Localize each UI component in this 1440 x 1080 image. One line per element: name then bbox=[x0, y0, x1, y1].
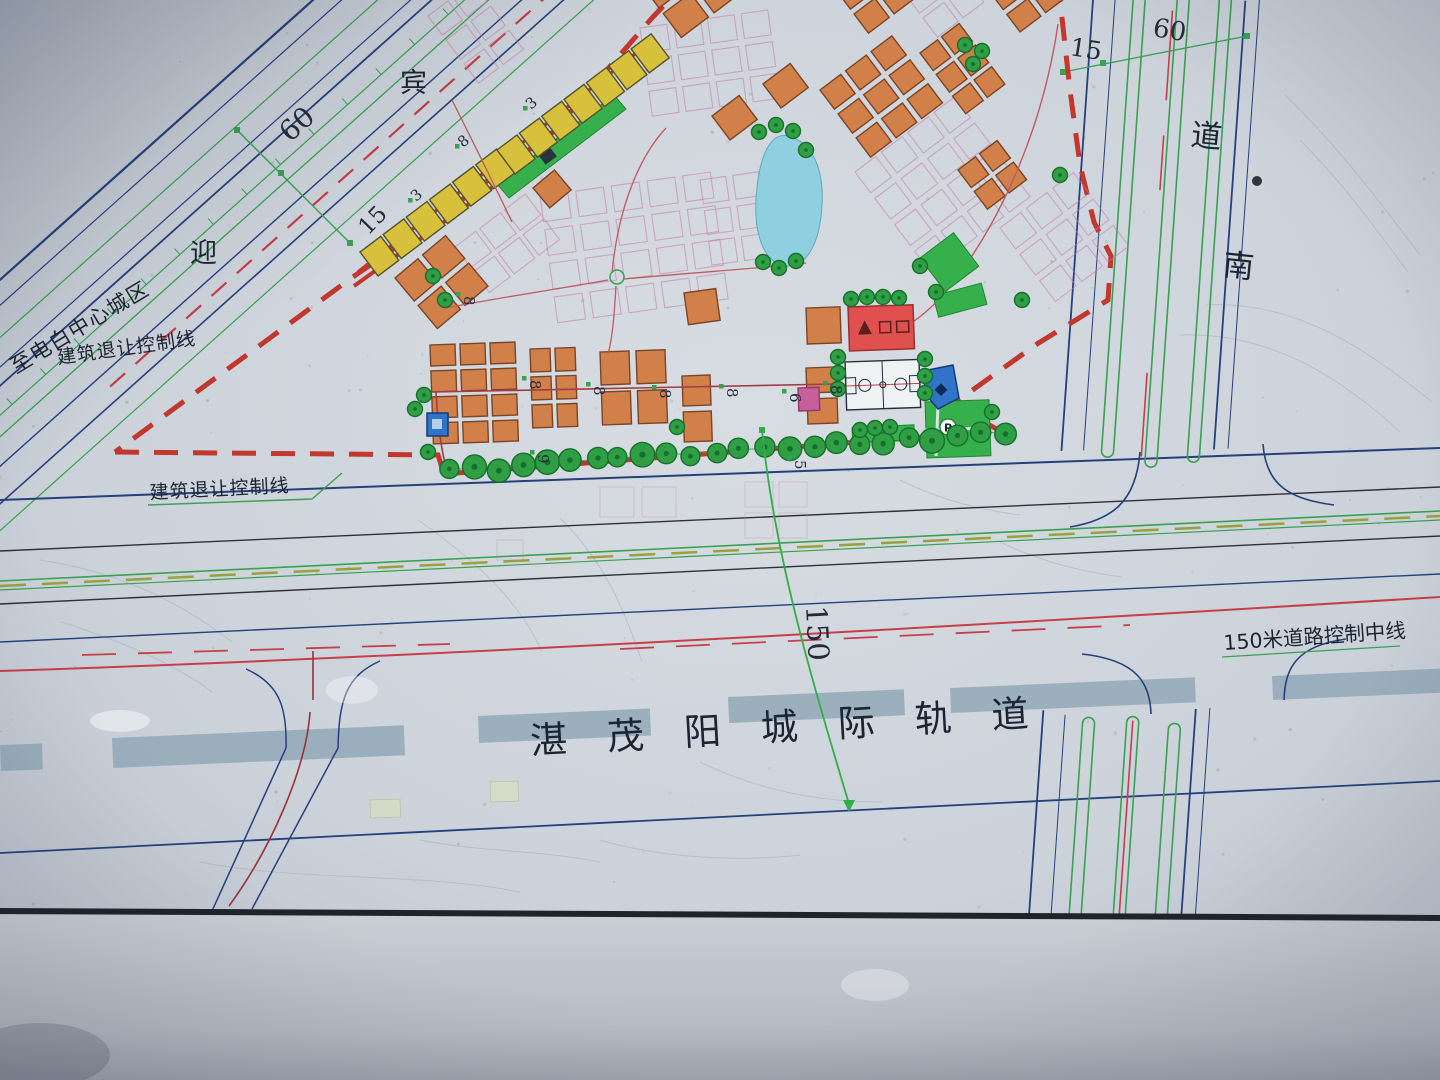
tree-center bbox=[857, 442, 862, 447]
speckle bbox=[210, 432, 212, 434]
speckle bbox=[391, 617, 393, 619]
tree-center bbox=[934, 290, 938, 294]
corridor-width-label: 150 bbox=[799, 605, 836, 662]
survey-tick bbox=[523, 106, 528, 111]
glare-spot bbox=[841, 969, 909, 1001]
survey-tick bbox=[787, 456, 792, 461]
tree-center bbox=[615, 455, 620, 460]
avenue-name-char-1: 迎 bbox=[190, 238, 217, 269]
tree-center bbox=[836, 355, 840, 359]
speckle bbox=[1381, 210, 1384, 213]
tree-center bbox=[426, 450, 430, 454]
ink-blot bbox=[1252, 176, 1262, 186]
speckle bbox=[226, 352, 227, 353]
speckle bbox=[451, 560, 453, 562]
speckle bbox=[420, 373, 422, 375]
tree-center bbox=[804, 148, 808, 152]
speckle bbox=[1129, 115, 1131, 117]
speckle bbox=[1022, 851, 1023, 852]
speckle bbox=[31, 902, 34, 905]
speckle bbox=[903, 838, 906, 841]
speckle bbox=[1092, 85, 1095, 88]
speckle bbox=[727, 306, 730, 309]
speckle bbox=[1162, 771, 1164, 773]
road-width-marker: 6 bbox=[786, 393, 804, 403]
tree-center bbox=[521, 462, 527, 468]
speckle bbox=[1336, 288, 1339, 291]
survey-tick bbox=[456, 292, 461, 297]
speckle bbox=[691, 498, 693, 500]
speckle bbox=[286, 32, 289, 35]
speckle bbox=[429, 151, 433, 155]
tree-center bbox=[918, 264, 922, 268]
speckle bbox=[624, 637, 626, 639]
speckle bbox=[768, 767, 771, 770]
tree-center bbox=[888, 425, 892, 429]
east-road-char-2: 南 bbox=[1221, 247, 1256, 286]
speckle bbox=[653, 299, 655, 301]
speckle bbox=[1321, 798, 1324, 801]
tree-center bbox=[897, 296, 901, 300]
tree-center bbox=[907, 435, 912, 440]
speckle bbox=[1182, 484, 1184, 486]
tree-center bbox=[849, 297, 853, 301]
east-road-char-1: 道 bbox=[1189, 117, 1224, 156]
speckle bbox=[315, 61, 319, 65]
speckle bbox=[32, 425, 35, 428]
speckle bbox=[0, 730, 2, 732]
survey-tick bbox=[408, 198, 413, 203]
speckle bbox=[379, 631, 382, 634]
speckle bbox=[359, 388, 362, 391]
tree-center bbox=[688, 454, 693, 459]
speckle bbox=[668, 791, 671, 794]
urban-planning-map-photo: P 833888886859 至电白中心城区 迎 宾 60 15 建筑退让控制线… bbox=[0, 0, 1440, 1080]
board-below-map bbox=[0, 915, 1440, 1080]
speckle bbox=[1105, 240, 1108, 243]
tree-center bbox=[1058, 173, 1062, 177]
tree-center bbox=[873, 426, 877, 430]
speckle bbox=[670, 399, 673, 402]
speckle bbox=[1423, 177, 1426, 180]
speckle bbox=[1083, 284, 1084, 285]
speckle bbox=[1267, 533, 1269, 535]
speckle bbox=[1289, 728, 1292, 731]
speckle bbox=[1387, 487, 1389, 489]
tree-center bbox=[413, 407, 417, 411]
tree-center bbox=[422, 393, 426, 397]
speckle bbox=[1291, 546, 1293, 548]
road-width-marker: 5 bbox=[791, 460, 809, 470]
tree-center bbox=[595, 455, 600, 460]
speckle bbox=[903, 612, 906, 615]
school-building bbox=[848, 305, 914, 351]
speckle bbox=[643, 851, 645, 853]
speckle bbox=[1087, 721, 1090, 724]
speckle bbox=[907, 613, 909, 615]
tree-center bbox=[881, 295, 885, 299]
speckle bbox=[483, 803, 487, 807]
survey-tick bbox=[652, 385, 657, 390]
speckle bbox=[264, 889, 266, 891]
tree-center bbox=[757, 130, 761, 134]
speckle bbox=[367, 355, 369, 357]
east-belt-label: 15 bbox=[1068, 32, 1104, 66]
speckle bbox=[613, 881, 615, 883]
speckle bbox=[522, 406, 524, 408]
speckle bbox=[271, 161, 274, 164]
speckle bbox=[1191, 570, 1194, 573]
speckle bbox=[290, 297, 293, 300]
speckle bbox=[595, 407, 598, 410]
speckle bbox=[1406, 290, 1409, 293]
speckle bbox=[1348, 447, 1350, 449]
speckle bbox=[206, 399, 209, 402]
speckle bbox=[1048, 307, 1050, 309]
tree-center bbox=[447, 467, 452, 472]
speckle bbox=[530, 36, 533, 39]
tree-center bbox=[791, 129, 795, 133]
speckle bbox=[691, 806, 692, 807]
survey-tick bbox=[530, 450, 535, 455]
tree-center bbox=[923, 357, 927, 361]
tree-center bbox=[963, 43, 967, 47]
tree-center bbox=[836, 371, 840, 375]
tree-center bbox=[496, 468, 502, 474]
speckle bbox=[474, 241, 477, 244]
tree-center bbox=[431, 274, 435, 278]
speckle bbox=[306, 44, 308, 46]
speckle bbox=[538, 279, 540, 281]
avenue-name-char-2: 宾 bbox=[400, 68, 427, 99]
road-width-marker: 8 bbox=[723, 388, 741, 398]
tree-center bbox=[567, 457, 573, 463]
speckle bbox=[1262, 396, 1264, 398]
speckle bbox=[457, 842, 460, 845]
tree-center bbox=[865, 295, 869, 299]
speckle bbox=[956, 530, 959, 533]
survey-tick bbox=[823, 381, 828, 386]
road-width-marker: 8 bbox=[526, 380, 544, 390]
glare-spot bbox=[90, 710, 150, 732]
speckle bbox=[1068, 506, 1071, 509]
speckle bbox=[308, 364, 311, 367]
speckle bbox=[150, 274, 154, 278]
speckle bbox=[125, 400, 129, 404]
tree-center bbox=[664, 451, 669, 456]
tree-center bbox=[736, 446, 741, 451]
speckle bbox=[212, 647, 214, 649]
speckle bbox=[348, 389, 351, 392]
speckle bbox=[1216, 768, 1219, 771]
survey-tick bbox=[719, 384, 724, 389]
tree-center bbox=[1003, 431, 1008, 436]
speckle bbox=[270, 293, 272, 295]
tree-center bbox=[978, 430, 983, 435]
tree-center bbox=[639, 452, 645, 458]
tree-center bbox=[980, 49, 984, 53]
tree-center bbox=[787, 446, 793, 452]
speckle bbox=[463, 320, 465, 322]
tree-center bbox=[471, 464, 477, 470]
survey-tick bbox=[586, 382, 591, 387]
tree-center bbox=[774, 123, 778, 127]
speckle bbox=[711, 131, 714, 134]
speckle bbox=[482, 75, 484, 77]
tree-center bbox=[443, 298, 447, 302]
speckle bbox=[1349, 499, 1351, 501]
speckle bbox=[1114, 731, 1118, 735]
road-width-marker: 8 bbox=[590, 386, 608, 396]
tree-center bbox=[675, 425, 679, 429]
speckle bbox=[277, 800, 279, 802]
speckle bbox=[310, 306, 313, 309]
speckle bbox=[1296, 410, 1298, 412]
basketball-court bbox=[845, 359, 921, 410]
speckle bbox=[631, 679, 633, 681]
speckle bbox=[1253, 737, 1257, 741]
tree-center bbox=[955, 433, 960, 438]
tree-center bbox=[715, 451, 720, 456]
tree-center bbox=[1020, 298, 1024, 302]
tree-center bbox=[990, 410, 994, 414]
tree-center bbox=[761, 260, 765, 264]
speckle bbox=[726, 141, 729, 144]
survey-tick bbox=[522, 376, 527, 381]
speckle bbox=[421, 354, 423, 356]
road-width-marker: 8 bbox=[460, 296, 478, 306]
tree-center bbox=[834, 440, 839, 445]
glare-spot bbox=[326, 676, 378, 704]
tree-center bbox=[794, 259, 798, 263]
tree-center bbox=[812, 444, 817, 449]
speckle bbox=[1432, 171, 1435, 174]
speckle bbox=[1091, 287, 1093, 289]
road-width-marker: 8 bbox=[656, 389, 674, 399]
road-width-marker: 8 bbox=[827, 385, 845, 395]
speckle bbox=[588, 8, 590, 10]
speckle bbox=[1221, 853, 1224, 856]
building-residential bbox=[684, 289, 720, 325]
speckle bbox=[540, 242, 542, 244]
speckle bbox=[1391, 665, 1393, 667]
speckle bbox=[274, 790, 277, 793]
speckle bbox=[179, 61, 181, 63]
speckle bbox=[692, 590, 695, 593]
survey-tick bbox=[455, 144, 460, 149]
tree-center bbox=[923, 374, 927, 378]
speckle bbox=[309, 598, 311, 600]
speckle bbox=[977, 905, 981, 909]
tree-center bbox=[971, 62, 975, 66]
speckle bbox=[565, 848, 566, 849]
survey-tick bbox=[782, 389, 787, 394]
speckle bbox=[1143, 211, 1146, 214]
speckle bbox=[679, 409, 681, 411]
speckle bbox=[10, 719, 12, 721]
speckle bbox=[815, 593, 817, 595]
building-residential bbox=[806, 307, 841, 344]
tree-center bbox=[929, 438, 935, 444]
road-width-marker: 9 bbox=[534, 454, 552, 464]
tree-center bbox=[858, 428, 862, 432]
east-width-label: 60 bbox=[1151, 13, 1188, 48]
tree-center bbox=[923, 391, 927, 395]
tree-center bbox=[777, 266, 781, 270]
speckle bbox=[984, 281, 987, 284]
speckle bbox=[1420, 496, 1422, 498]
tree-center bbox=[880, 441, 886, 447]
speckle bbox=[311, 241, 314, 244]
speckle bbox=[1160, 88, 1161, 89]
speckle bbox=[917, 345, 919, 347]
